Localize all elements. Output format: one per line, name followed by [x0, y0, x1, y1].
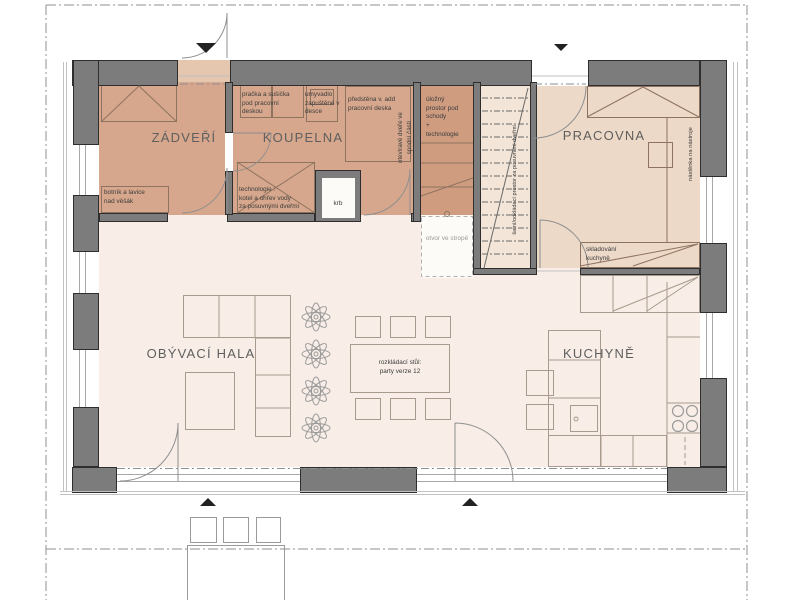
- kitchen-bottom-counter: [548, 435, 667, 467]
- front-door-threshold: [178, 60, 230, 82]
- terrace: [187, 545, 285, 600]
- note-pinboard: nástěnka na nástroje: [687, 127, 695, 181]
- note-cloakroom-wrap: šatní/odkládací prostor za posuvními dve…: [446, 110, 586, 250]
- interior-wall: [580, 268, 700, 275]
- note-table: rozkládací stůl: party verze 12: [352, 359, 448, 376]
- exterior-wall: [73, 60, 99, 145]
- window: [73, 350, 99, 407]
- window: [700, 313, 727, 378]
- bar-stool: [526, 404, 554, 430]
- sofa-top: [183, 295, 291, 338]
- dining-chair: [425, 398, 451, 420]
- room-label-zadveri: ZÁDVEŘÍ: [134, 130, 234, 145]
- floor-plan: ZÁDVEŘÍ KOUPELNA PRACOVNA OBÝVACÍ HALA K…: [0, 0, 800, 600]
- room-label-kuchyne: KUCHYNĚ: [549, 346, 649, 361]
- interior-wall: [227, 213, 315, 222]
- dining-chair: [355, 316, 381, 338]
- fireplace-inner: [322, 178, 355, 218]
- exterior-wall: [700, 378, 727, 467]
- note-boiler: technologie : kotel a ohřev vody za posu…: [239, 186, 313, 212]
- exterior-wall: [230, 60, 532, 86]
- note-washbasin: umyvadlo zapuštěné v desce: [305, 91, 343, 117]
- exterior-wall: [73, 407, 99, 467]
- note-fireplace: krb: [315, 200, 361, 209]
- dining-chair: [390, 398, 416, 420]
- study-wardrobe: [587, 86, 700, 118]
- room-label-koupelna: KOUPELNA: [253, 130, 353, 145]
- note-opening-doors: otevíravé dveře ve spodní části: [396, 113, 413, 164]
- note-pinboard-wrap: nástěnka na nástroje: [656, 119, 726, 189]
- dining-chair: [390, 316, 416, 338]
- entry-wardrobe: [101, 85, 177, 122]
- note-cloakroom: šatní/odkládací prostor za posuvními dve…: [512, 125, 520, 234]
- pantry-cabinets: [580, 275, 700, 313]
- stair-wall: [473, 268, 537, 275]
- dining-chair: [355, 398, 381, 420]
- interior-wall: [99, 213, 168, 222]
- note-shoe-bench: botník a lavice nad věšák: [104, 189, 166, 206]
- exterior-wall: [72, 467, 117, 493]
- planter: [256, 517, 281, 543]
- exterior-wall: [700, 243, 727, 313]
- glass-sliding-door: [417, 467, 667, 493]
- window: [73, 252, 99, 293]
- note-kitchen-storage: skladování kuchyně: [586, 246, 636, 263]
- note-washer-dryer: pračka a sušička pod pracovní deskou: [242, 91, 300, 117]
- exterior-wall: [588, 60, 700, 86]
- coffee-table: [185, 372, 235, 430]
- interior-wall: [225, 171, 233, 215]
- glass-sliding-door: [117, 467, 300, 493]
- bar-stool: [526, 370, 554, 396]
- exterior-wall: [667, 467, 727, 493]
- exterior-wall: [73, 195, 99, 252]
- planter: [190, 517, 217, 543]
- room-label-obyvaci-hala: OBÝVACÍ HALA: [141, 346, 261, 361]
- planter: [223, 517, 249, 543]
- side-door-threshold: [532, 60, 588, 86]
- interior-wall: [225, 82, 233, 133]
- exterior-wall: [73, 293, 99, 350]
- window: [73, 145, 99, 195]
- exterior-wall: [300, 467, 417, 493]
- dining-chair: [425, 316, 451, 338]
- note-opening-doors-wrap: otevíravé dveře ve spodní části: [377, 110, 433, 166]
- sink: [570, 405, 598, 432]
